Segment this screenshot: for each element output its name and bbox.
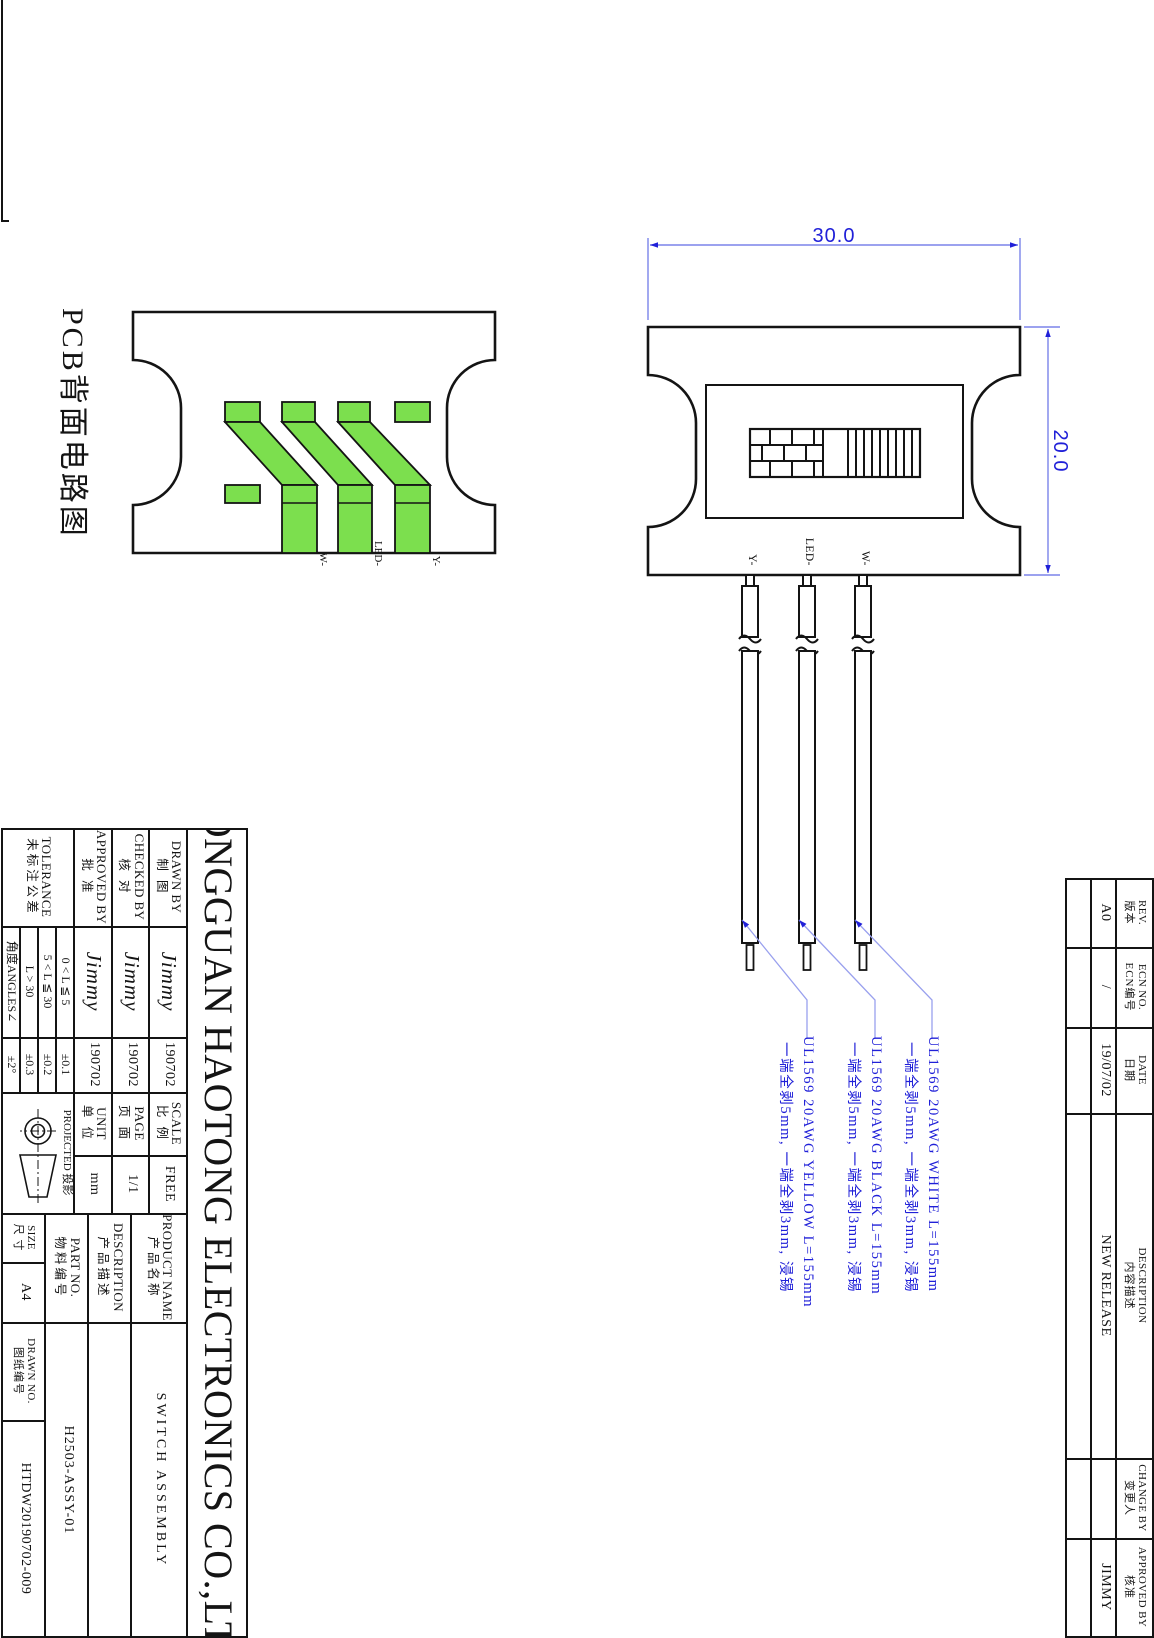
projected-label: PROJECTED 投影	[60, 1110, 73, 1196]
product-name-value: SWITCH ASSEMBLY	[132, 1322, 188, 1638]
change-by-en: CHANGE BY	[1136, 1464, 1149, 1531]
leader-yellow	[742, 920, 807, 1038]
note-yellow-process: 一端全剥5mm, 一端全剥3mm, 浸锡	[776, 1042, 797, 1293]
pcb-back-view-drawing: Y- LED- W-	[133, 312, 495, 553]
description-value-rev: NEW RELEASE	[1092, 1113, 1117, 1458]
drawn-no-cn: 图纸编号	[12, 1347, 25, 1395]
wire-led	[796, 575, 818, 970]
rev-header-cn: 版本	[1123, 901, 1136, 925]
pcb-pad	[395, 402, 430, 422]
tolerance-cond: 0 < L ≦ 5	[57, 926, 75, 1037]
description-header: DESCRIPTION 产品描述	[89, 1213, 132, 1322]
rev-value: A0	[1092, 878, 1117, 947]
note-leaders	[724, 915, 954, 1045]
pcb-label-led: LED-	[372, 541, 384, 566]
tolerance-value: ±0.2	[39, 1037, 57, 1092]
tolerance-cn: 未标注公差	[24, 838, 39, 916]
page-cn: 页 面	[116, 1105, 131, 1142]
drawn-by-en: DRAWN BY	[169, 841, 184, 914]
rev-header: REV. 版本	[1117, 878, 1154, 947]
scale-value: FREE	[150, 1155, 188, 1213]
pcb-trace-bar	[395, 485, 430, 553]
pcb-trace-bar	[282, 485, 317, 553]
note-black-process: 一端全剥5mm, 一端全剥3mm, 浸锡	[844, 1042, 865, 1293]
drawn-by-header: DRAWN BY 制 图	[150, 828, 188, 926]
checked-date: 190702	[113, 1037, 150, 1092]
third-angle-projection-icon	[14, 1097, 60, 1209]
drawn-no-en: DRAWN NO.	[25, 1338, 38, 1404]
drawn-no-header: DRAWN NO. 图纸编号	[3, 1322, 46, 1420]
drawn-no-value: HTDW20190702-009	[3, 1420, 46, 1637]
scale-header: SCALE 比 例	[150, 1092, 188, 1155]
description-cn: 产品描述	[95, 1236, 110, 1298]
dim-text-20: 20.0	[1049, 430, 1071, 473]
size-cn: 尺 寸	[12, 1224, 25, 1252]
change-by-cn: 变更人	[1123, 1480, 1136, 1516]
product-name-cn: 产品名称	[145, 1236, 160, 1298]
tolerance-header: TOLERANCE 未标注公差	[3, 828, 75, 926]
pcb-label-y: Y-	[430, 556, 442, 567]
note-white-process: 一端全剥5mm, 一端全剥3mm, 浸锡	[901, 1042, 922, 1293]
engineering-drawing-sheet: Y- LED- W- PCB背面电路图	[0, 0, 1154, 1638]
projection-cell: PROJECTED 投影	[3, 1092, 75, 1213]
change-by-value	[1092, 1458, 1117, 1538]
page-value: 1/1	[113, 1155, 150, 1213]
wire-yellow	[739, 575, 761, 970]
checked-by-header: CHECKED BY 核 对	[113, 828, 150, 926]
sheet-border-tick	[1, 220, 9, 222]
size-en: SIZE	[25, 1225, 38, 1250]
tolerance-cond: L > 30	[21, 926, 39, 1037]
approved-col-en: APPROVED BY	[1136, 1547, 1149, 1628]
date-header-en: DATE	[1136, 1055, 1149, 1085]
ecn-header-cn: ECN编号	[1123, 963, 1136, 1012]
approved-by-en: APPROVED BY	[94, 830, 109, 924]
part-no-cn: 物料编号	[52, 1236, 67, 1298]
description-col-header: DESCRIPTION 内容描述	[1117, 1113, 1154, 1458]
drawing-sheet-viewport: Y- LED- W- PCB背面电路图	[0, 0, 1154, 1638]
change-by-header: CHANGE BY 变更人	[1117, 1458, 1154, 1538]
dimensions: 20.0 30.0	[634, 215, 1074, 595]
note-yellow-spec: UL1569 20AWG YELLOW L=155mm	[799, 1036, 816, 1308]
size-value: A4	[3, 1262, 46, 1322]
approved-by-value: JIMMY	[1092, 1538, 1117, 1636]
leader-white	[855, 920, 932, 1038]
company-name: DONGGUAN HAOTONG ELECTRONICS CO.,LTD.	[188, 828, 248, 1638]
approved-by-cn: 批 准	[79, 858, 94, 895]
tolerance-cond: 角度ANGLES∠	[3, 926, 21, 1037]
note-white-spec: UL1569 20AWG WHITE L=155mm	[924, 1036, 941, 1293]
drawn-by-signature: Jimmy	[150, 926, 188, 1037]
tolerance-en: TOLERANCE	[39, 837, 54, 918]
scale-en: SCALE	[169, 1102, 184, 1145]
wire-white	[852, 575, 874, 970]
product-name-en: PRODUCT NAME	[160, 1214, 175, 1321]
tolerance-value: ±0.3	[21, 1037, 39, 1092]
approved-date: 190702	[75, 1037, 113, 1092]
tolerance-value: ±2°	[3, 1037, 21, 1092]
scale-cn: 比 例	[154, 1105, 169, 1142]
part-no-value: H2503-ASSY-01	[46, 1322, 89, 1638]
note-black-spec: UL1569 20AWG BLACK L=155mm	[867, 1036, 884, 1295]
part-no-header: PART NO. 物料编号	[46, 1213, 89, 1322]
unit-en: UNIT	[94, 1107, 109, 1140]
checked-by-signature: Jimmy	[113, 926, 150, 1037]
description-col-cn: 内容描述	[1123, 1262, 1136, 1310]
pcb-view-title: PCB背面电路图	[54, 308, 98, 539]
dim-text-30: 30.0	[813, 225, 856, 247]
date-value: 19/07/02	[1092, 1027, 1117, 1113]
leader-black	[799, 920, 875, 1038]
ecn-value: /	[1092, 947, 1117, 1027]
unit-header: UNIT 单 位	[75, 1092, 113, 1155]
date-header: DATE 日期	[1117, 1027, 1154, 1113]
pcb-pad-isolated	[225, 485, 260, 503]
tolerance-cond: 5 < L ≦ 30	[39, 926, 57, 1037]
tolerance-value: ±0.1	[57, 1037, 75, 1092]
approved-col-header: APPROVED BY 核准	[1117, 1538, 1154, 1636]
drawn-by-cn: 制 图	[154, 858, 169, 895]
unit-cn: 单 位	[79, 1105, 94, 1142]
unit-value: mm	[75, 1155, 113, 1213]
pcb-pad	[338, 402, 370, 422]
rev-header-en: REV.	[1136, 900, 1149, 925]
checked-by-en: CHECKED BY	[131, 834, 146, 921]
drawn-date: 190702	[150, 1037, 188, 1092]
ecn-header-en: ECN NO.	[1136, 964, 1149, 1010]
pcb-trace-bar	[338, 485, 372, 553]
pcb-pad	[225, 402, 260, 422]
part-no-en: PART NO.	[67, 1238, 82, 1298]
page-header: PAGE 页 面	[113, 1092, 150, 1155]
product-name-header: PRODUCT NAME 产品名称	[132, 1213, 188, 1322]
size-header: SIZE 尺 寸	[3, 1213, 46, 1262]
approved-by-header: APPROVED BY 批 准	[75, 828, 113, 926]
pcb-label-w: W-	[317, 553, 329, 567]
approved-col-cn: 核准	[1123, 1575, 1136, 1599]
description-en: DESCRIPTION	[110, 1223, 125, 1312]
sheet-border-line	[1, 0, 3, 222]
pcb-pad	[282, 402, 315, 422]
checked-by-cn: 核 对	[116, 858, 131, 895]
revtable-line	[1065, 878, 1067, 1638]
description-value	[89, 1322, 132, 1638]
approved-by-signature: Jimmy	[75, 926, 113, 1037]
page-en: PAGE	[131, 1106, 146, 1140]
description-col-en: DESCRIPTION	[1136, 1248, 1149, 1324]
ecn-header: ECN NO. ECN编号	[1117, 947, 1154, 1027]
date-header-cn: 日期	[1123, 1058, 1136, 1082]
